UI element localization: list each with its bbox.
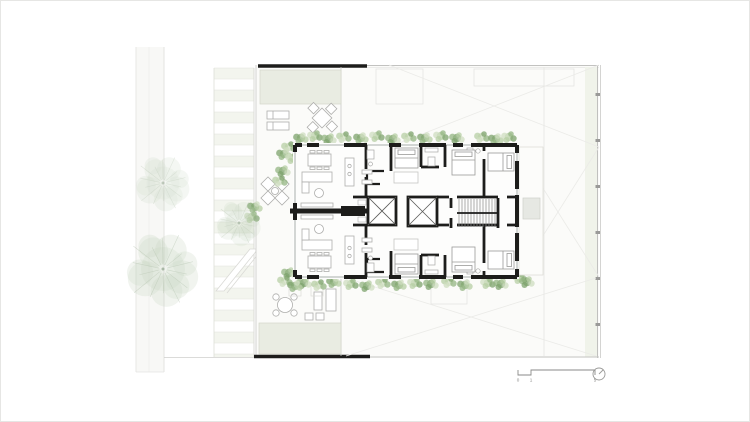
wardrobe: [394, 172, 418, 183]
lounge-chair: [326, 289, 336, 311]
terrace-planter: [523, 198, 540, 219]
bed: [395, 148, 418, 168]
green-roof-bottom: [259, 323, 341, 354]
site-plan-canvas: 0 1 5: [1, 1, 750, 422]
bed: [452, 247, 475, 272]
coffee-table: [315, 189, 324, 198]
bed: [395, 254, 418, 274]
bed: [488, 153, 514, 171]
dining-table: [308, 253, 331, 272]
dining-table: [308, 151, 331, 170]
scale-bar: 0 1 5: [517, 370, 597, 383]
perimeter-planting-strip: [585, 67, 597, 357]
scale-label-1: 1: [530, 378, 533, 383]
scale-bar-line: [518, 370, 595, 375]
lounge-chair: [314, 292, 322, 310]
coffee-table: [315, 225, 324, 234]
building: [290, 143, 543, 279]
lounge-chair: [267, 111, 289, 119]
tv-console: [301, 203, 333, 207]
scale-label-0: 0: [517, 378, 520, 383]
wardrobe: [394, 239, 418, 250]
green-roof-top: [260, 70, 341, 104]
drawing-sheet: 0 1 5: [0, 0, 750, 422]
tv-console: [301, 215, 333, 219]
lounge-chair: [267, 122, 289, 130]
bed: [452, 150, 475, 175]
bed: [488, 251, 514, 269]
round-table: [278, 298, 293, 313]
